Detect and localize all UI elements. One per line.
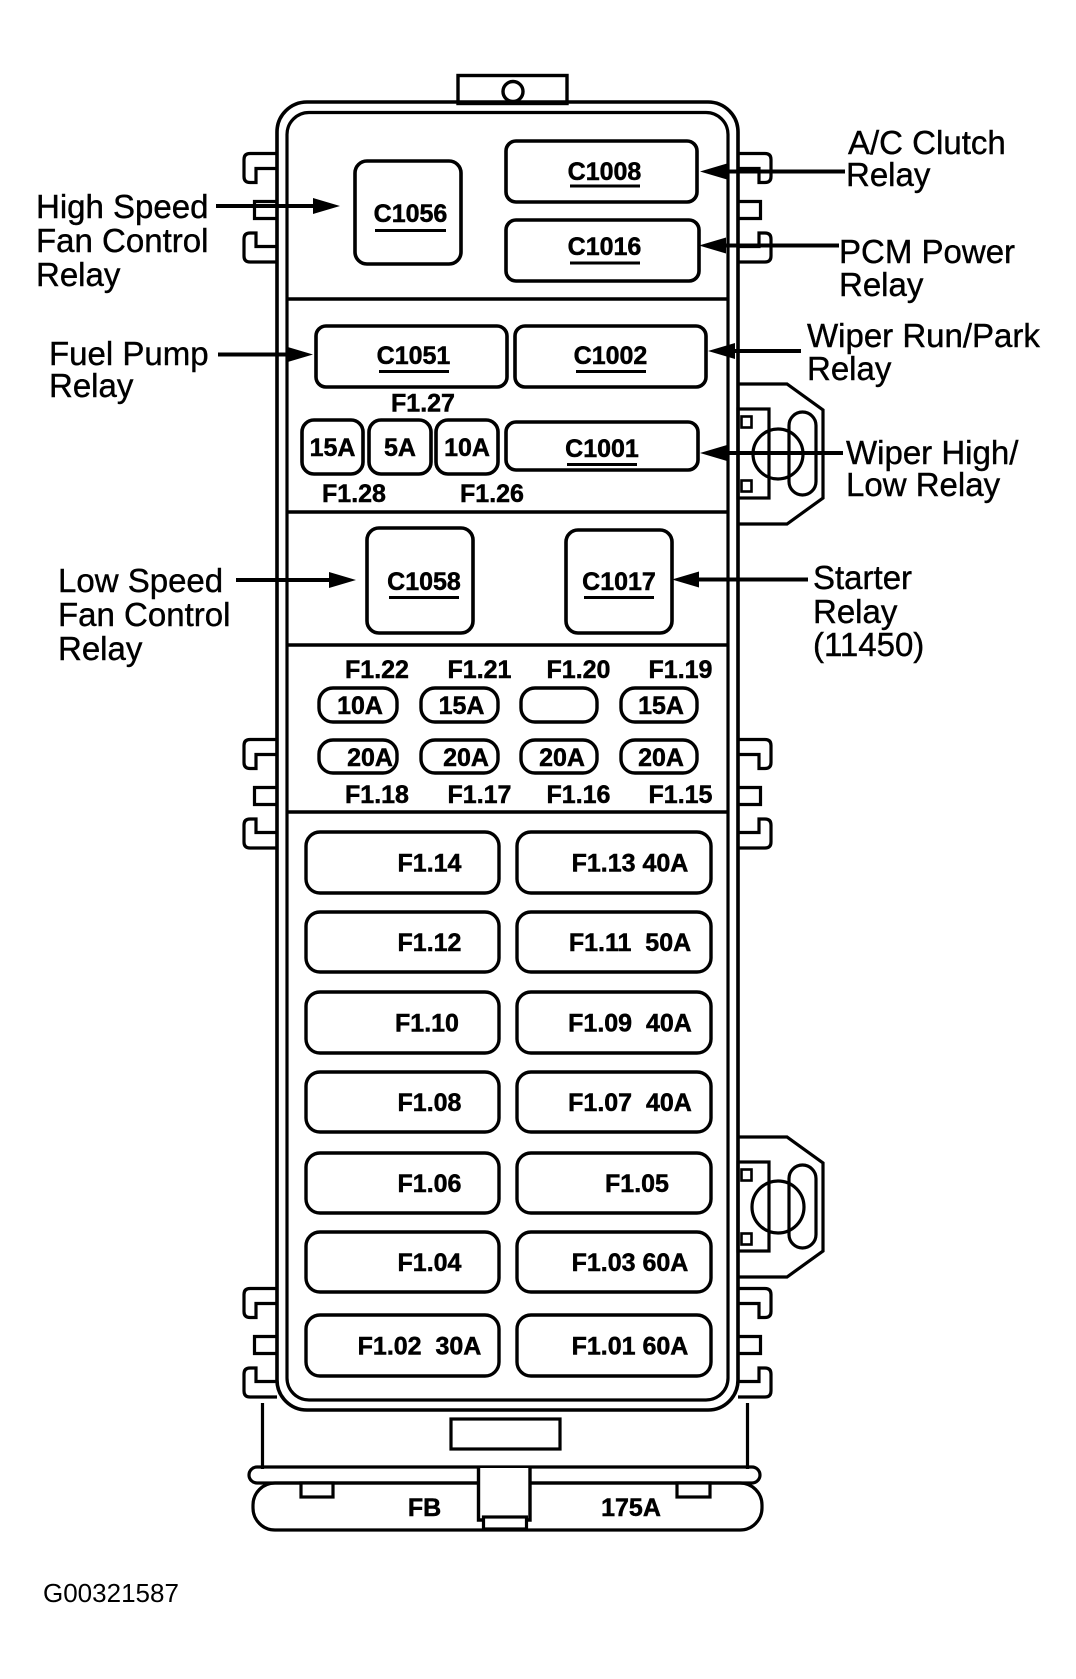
svg-text:C1016: C1016 [568, 233, 642, 261]
svg-text:F1.16: F1.16 [547, 781, 611, 809]
svg-text:20A: 20A [443, 744, 489, 772]
svg-text:Fan Control: Fan Control [58, 596, 230, 633]
svg-text:F1.21: F1.21 [448, 656, 512, 684]
svg-text:F1.20: F1.20 [547, 656, 611, 684]
svg-text:Low Speed: Low Speed [58, 562, 223, 599]
svg-text:F1.12: F1.12 [398, 929, 462, 957]
svg-text:F1.13 40A: F1.13 40A [572, 850, 689, 878]
svg-text:Wiper Run/Park: Wiper Run/Park [807, 317, 1040, 354]
svg-text:Relay: Relay [58, 630, 143, 667]
svg-text:F1.04: F1.04 [398, 1249, 462, 1277]
svg-text:F1.14: F1.14 [398, 850, 462, 878]
svg-text:G00321587: G00321587 [43, 1578, 179, 1608]
svg-text:10A: 10A [444, 434, 490, 462]
svg-text:15A: 15A [310, 434, 356, 462]
svg-text:PCM Power: PCM Power [839, 233, 1015, 270]
svg-text:F1.17: F1.17 [448, 781, 512, 809]
svg-text:High Speed: High Speed [36, 188, 208, 225]
svg-text:Relay: Relay [813, 593, 898, 630]
svg-text:C1051: C1051 [377, 342, 451, 370]
svg-text:Fan Control: Fan Control [36, 222, 208, 259]
svg-text:10A: 10A [337, 692, 383, 720]
svg-text:F1.15: F1.15 [649, 781, 713, 809]
svg-text:Relay: Relay [36, 256, 121, 293]
svg-text:F1.19: F1.19 [649, 656, 713, 684]
svg-text:(11450): (11450) [813, 626, 924, 663]
svg-text:F1.05: F1.05 [605, 1170, 669, 1198]
svg-text:C1001: C1001 [565, 435, 639, 463]
svg-text:F1.01 60A: F1.01 60A [572, 1333, 689, 1361]
svg-text:C1056: C1056 [374, 200, 448, 228]
svg-text:Relay: Relay [839, 266, 924, 303]
svg-text:F1.03 60A: F1.03 60A [572, 1249, 689, 1277]
svg-text:F1.02 30A: F1.02 30A [358, 1333, 482, 1361]
svg-text:F1.22: F1.22 [345, 656, 409, 684]
svg-text:F1.06: F1.06 [398, 1170, 462, 1198]
svg-text:20A: 20A [347, 744, 393, 772]
svg-text:F1.27: F1.27 [391, 390, 455, 418]
svg-text:Starter: Starter [813, 559, 912, 596]
svg-text:F1.28: F1.28 [322, 480, 386, 508]
svg-text:F1.07 40A: F1.07 40A [568, 1089, 692, 1117]
svg-text:F1.10: F1.10 [395, 1010, 459, 1038]
svg-text:Low Relay: Low Relay [846, 466, 1001, 503]
svg-text:Relay: Relay [846, 156, 931, 193]
svg-text:20A: 20A [638, 744, 684, 772]
svg-text:F1.09 40A: F1.09 40A [568, 1010, 692, 1038]
svg-text:F1.08: F1.08 [398, 1089, 462, 1117]
svg-text:Relay: Relay [807, 350, 892, 387]
svg-text:F1.11 50A: F1.11 50A [569, 929, 691, 957]
svg-text:F1.18: F1.18 [345, 781, 409, 809]
svg-text:175A: 175A [601, 1494, 661, 1522]
svg-text:20A: 20A [539, 744, 585, 772]
svg-text:15A: 15A [439, 692, 485, 720]
svg-text:F1.26: F1.26 [460, 480, 524, 508]
svg-text:FB: FB [408, 1494, 441, 1522]
svg-text:5A: 5A [384, 434, 416, 462]
svg-text:C1058: C1058 [387, 568, 461, 596]
svg-text:C1017: C1017 [582, 568, 656, 596]
svg-text:C1008: C1008 [568, 158, 642, 186]
svg-text:15A: 15A [638, 692, 684, 720]
svg-text:C1002: C1002 [574, 342, 648, 370]
svg-text:Relay: Relay [49, 367, 134, 404]
